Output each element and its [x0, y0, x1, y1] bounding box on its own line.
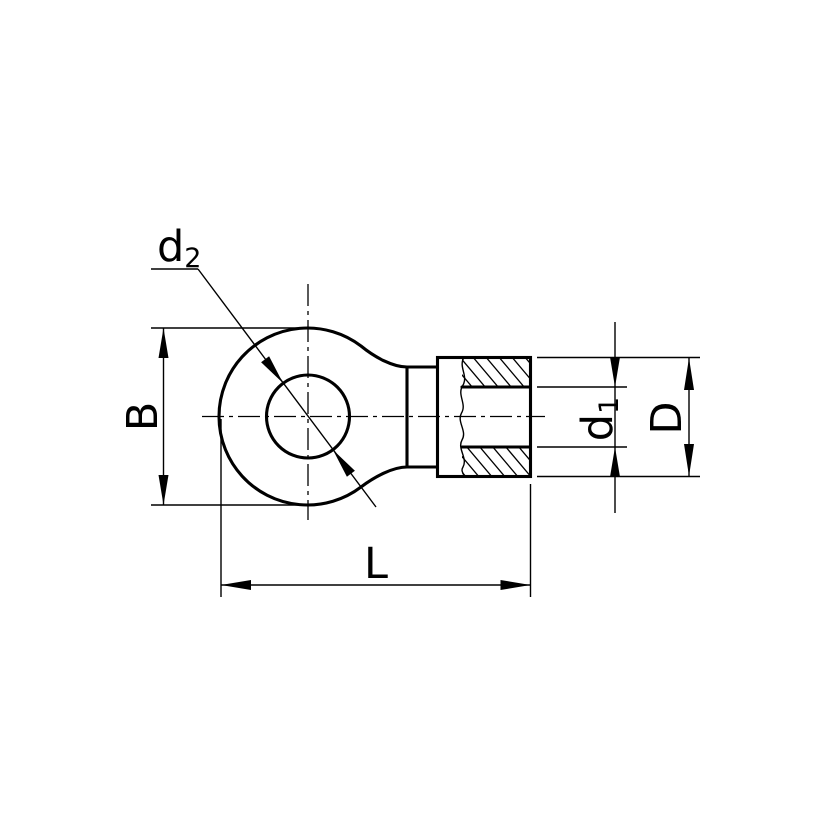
dim-label-L: L	[364, 539, 388, 589]
dim-d1: d1	[537, 322, 627, 513]
arrowhead-up	[684, 358, 694, 390]
arrowhead-down	[159, 475, 169, 505]
dim-label-d2: d2	[157, 222, 201, 274]
arrowhead-to-hole-upper	[261, 356, 283, 383]
dim-label-B: B	[118, 402, 168, 432]
arrowhead-left	[221, 580, 251, 590]
dim-label-d1: d1	[573, 397, 625, 441]
section-hatch-top	[446, 356, 551, 388]
centerlines	[202, 284, 545, 520]
ring-terminal-drawing: B d2 d1 D L	[0, 0, 820, 820]
arrowhead-to-hole-lower	[333, 450, 355, 477]
arrowhead-up	[610, 447, 620, 477]
arrowhead-down	[684, 444, 694, 476]
arrowhead-up	[159, 328, 169, 358]
arrowhead-down	[610, 357, 620, 387]
arrowhead-right	[501, 580, 531, 590]
dim-label-D: D	[642, 401, 692, 434]
technical-drawing-page: B d2 d1 D L	[0, 0, 820, 820]
dim-d2: d2	[151, 222, 376, 507]
section-hatch-bottom	[440, 446, 556, 478]
